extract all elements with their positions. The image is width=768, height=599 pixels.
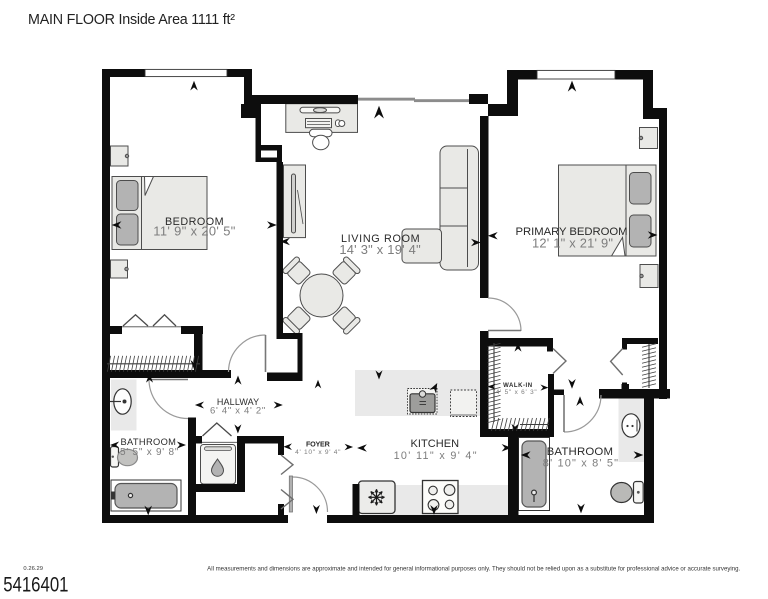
svg-text:4' 5" x 6' 3": 4' 5" x 6' 3" [496,389,537,396]
svg-text:MAIN FLOOR Inside Area 1111 ft: MAIN FLOOR Inside Area 1111 ft² [28,12,235,28]
svg-text:WALK-IN: WALK-IN [503,383,532,389]
svg-text:8' 10" x 8' 5": 8' 10" x 8' 5" [543,457,618,469]
svg-text:FOYER: FOYER [306,440,331,449]
svg-text:5' 5" x 9' 8": 5' 5" x 9' 8" [120,447,179,458]
svg-text:BATHROOM: BATHROOM [547,446,613,458]
svg-text:11' 9" x 20' 5": 11' 9" x 20' 5" [153,224,235,239]
svg-text:14' 3" x 19' 4": 14' 3" x 19' 4" [339,242,421,257]
svg-text:5416401: 5416401 [3,573,68,594]
svg-text:All measurements and dimension: All measurements and dimensions are appr… [207,566,740,572]
svg-text:4' 10" x 9' 4": 4' 10" x 9' 4" [295,449,341,456]
svg-text:BATHROOM: BATHROOM [121,437,176,447]
svg-text:0.26.29: 0.26.29 [23,566,43,572]
svg-text:KITCHEN: KITCHEN [411,438,460,450]
svg-text:12' 1" x 21' 9": 12' 1" x 21' 9" [532,235,613,250]
svg-text:6' 4" x 4' 2": 6' 4" x 4' 2" [210,405,265,416]
